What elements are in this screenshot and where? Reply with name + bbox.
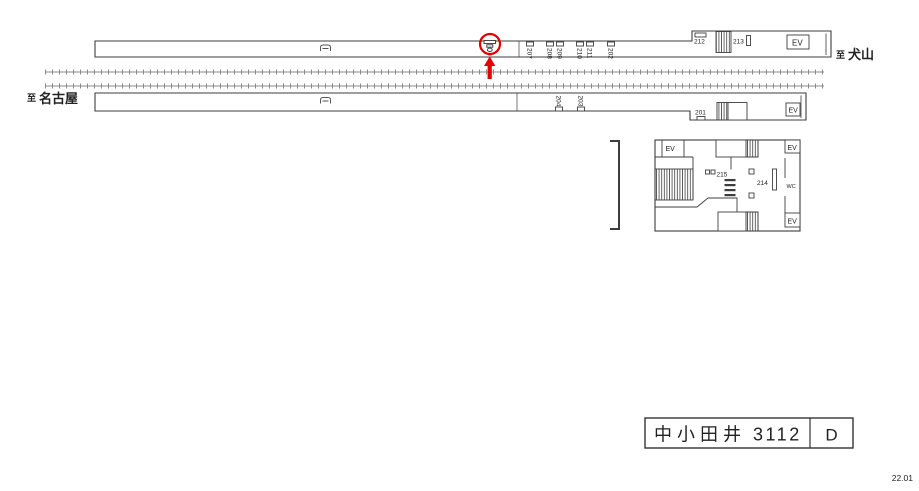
station-map-page: 207 208 209 210 211 202 212 213 EV	[0, 0, 919, 491]
ad-box-215b	[711, 170, 715, 174]
direction-right-name: 犬山	[848, 47, 874, 62]
ad-box-204	[556, 107, 563, 111]
direction-left: 至 名古屋	[27, 91, 78, 106]
elevator-concourse-topright-label: EV	[788, 145, 798, 152]
ad-label-214: 214	[757, 180, 768, 187]
overpass-bracket	[610, 141, 619, 229]
stairs-concourse-left	[655, 169, 693, 200]
ad-label-201: 201	[695, 110, 706, 117]
station-code: 3112	[753, 425, 802, 445]
ad-label-203: 203	[577, 96, 584, 107]
direction-right: 至 犬山	[836, 47, 874, 62]
ad-label-213: 213	[733, 39, 744, 46]
sign-letter: D	[825, 426, 837, 445]
ad-box-202	[608, 42, 615, 46]
station-name: 中小田井	[654, 425, 746, 445]
ad-box-207	[527, 42, 534, 46]
ad-box-211	[587, 42, 594, 46]
ad-label-202: 202	[607, 48, 614, 59]
ad-box-small-upper	[749, 169, 754, 174]
stairs-concourse-bottom	[746, 212, 758, 231]
elevator-concourse-bottomright-label: EV	[788, 219, 798, 226]
ad-box-201	[697, 117, 705, 121]
pointer-arrow	[484, 57, 495, 80]
ad-box-small-lower	[749, 193, 754, 198]
elevator-concourse-topleft-label: EV	[666, 146, 676, 153]
ad-label-207: 207	[526, 48, 533, 59]
direction-left-name: 名古屋	[39, 91, 78, 106]
stairs-concourse-top	[746, 140, 758, 157]
ad-box-208	[547, 42, 554, 46]
ad-box-209	[557, 42, 564, 46]
station-layout-diagram: 207 208 209 210 211 202 212 213 EV	[0, 0, 919, 491]
ad-box-203	[578, 107, 585, 111]
revision-date: 22.01	[892, 473, 914, 483]
ad-label-210: 210	[576, 48, 583, 59]
ad-label-212: 212	[694, 39, 705, 46]
ad-label-211: 211	[586, 48, 593, 59]
ad-box-210	[577, 42, 584, 46]
station-sign-box: 中小田井 3112 D	[645, 418, 853, 448]
elevator-bottom-label: EV	[789, 108, 799, 115]
pillar-214	[773, 169, 777, 190]
ad-box-212	[695, 33, 706, 37]
ad-box-215a	[706, 170, 710, 174]
ad-box-213	[747, 36, 751, 46]
ad-label-209: 209	[556, 48, 563, 59]
ad-label-215: 215	[717, 172, 728, 179]
direction-left-prefix: 至	[27, 93, 36, 103]
concourse: EV 215 214 EV WC	[655, 140, 800, 231]
ramp-bottom-platform	[728, 103, 747, 121]
wc-label: WC	[787, 184, 796, 190]
ad-label-208: 208	[546, 48, 553, 59]
stairs-top-platform	[716, 32, 731, 53]
stairs-bottom-platform	[717, 103, 728, 121]
ad-label-204: 204	[555, 96, 562, 107]
direction-right-prefix: 至	[836, 50, 845, 60]
elevator-top-label: EV	[792, 39, 803, 48]
